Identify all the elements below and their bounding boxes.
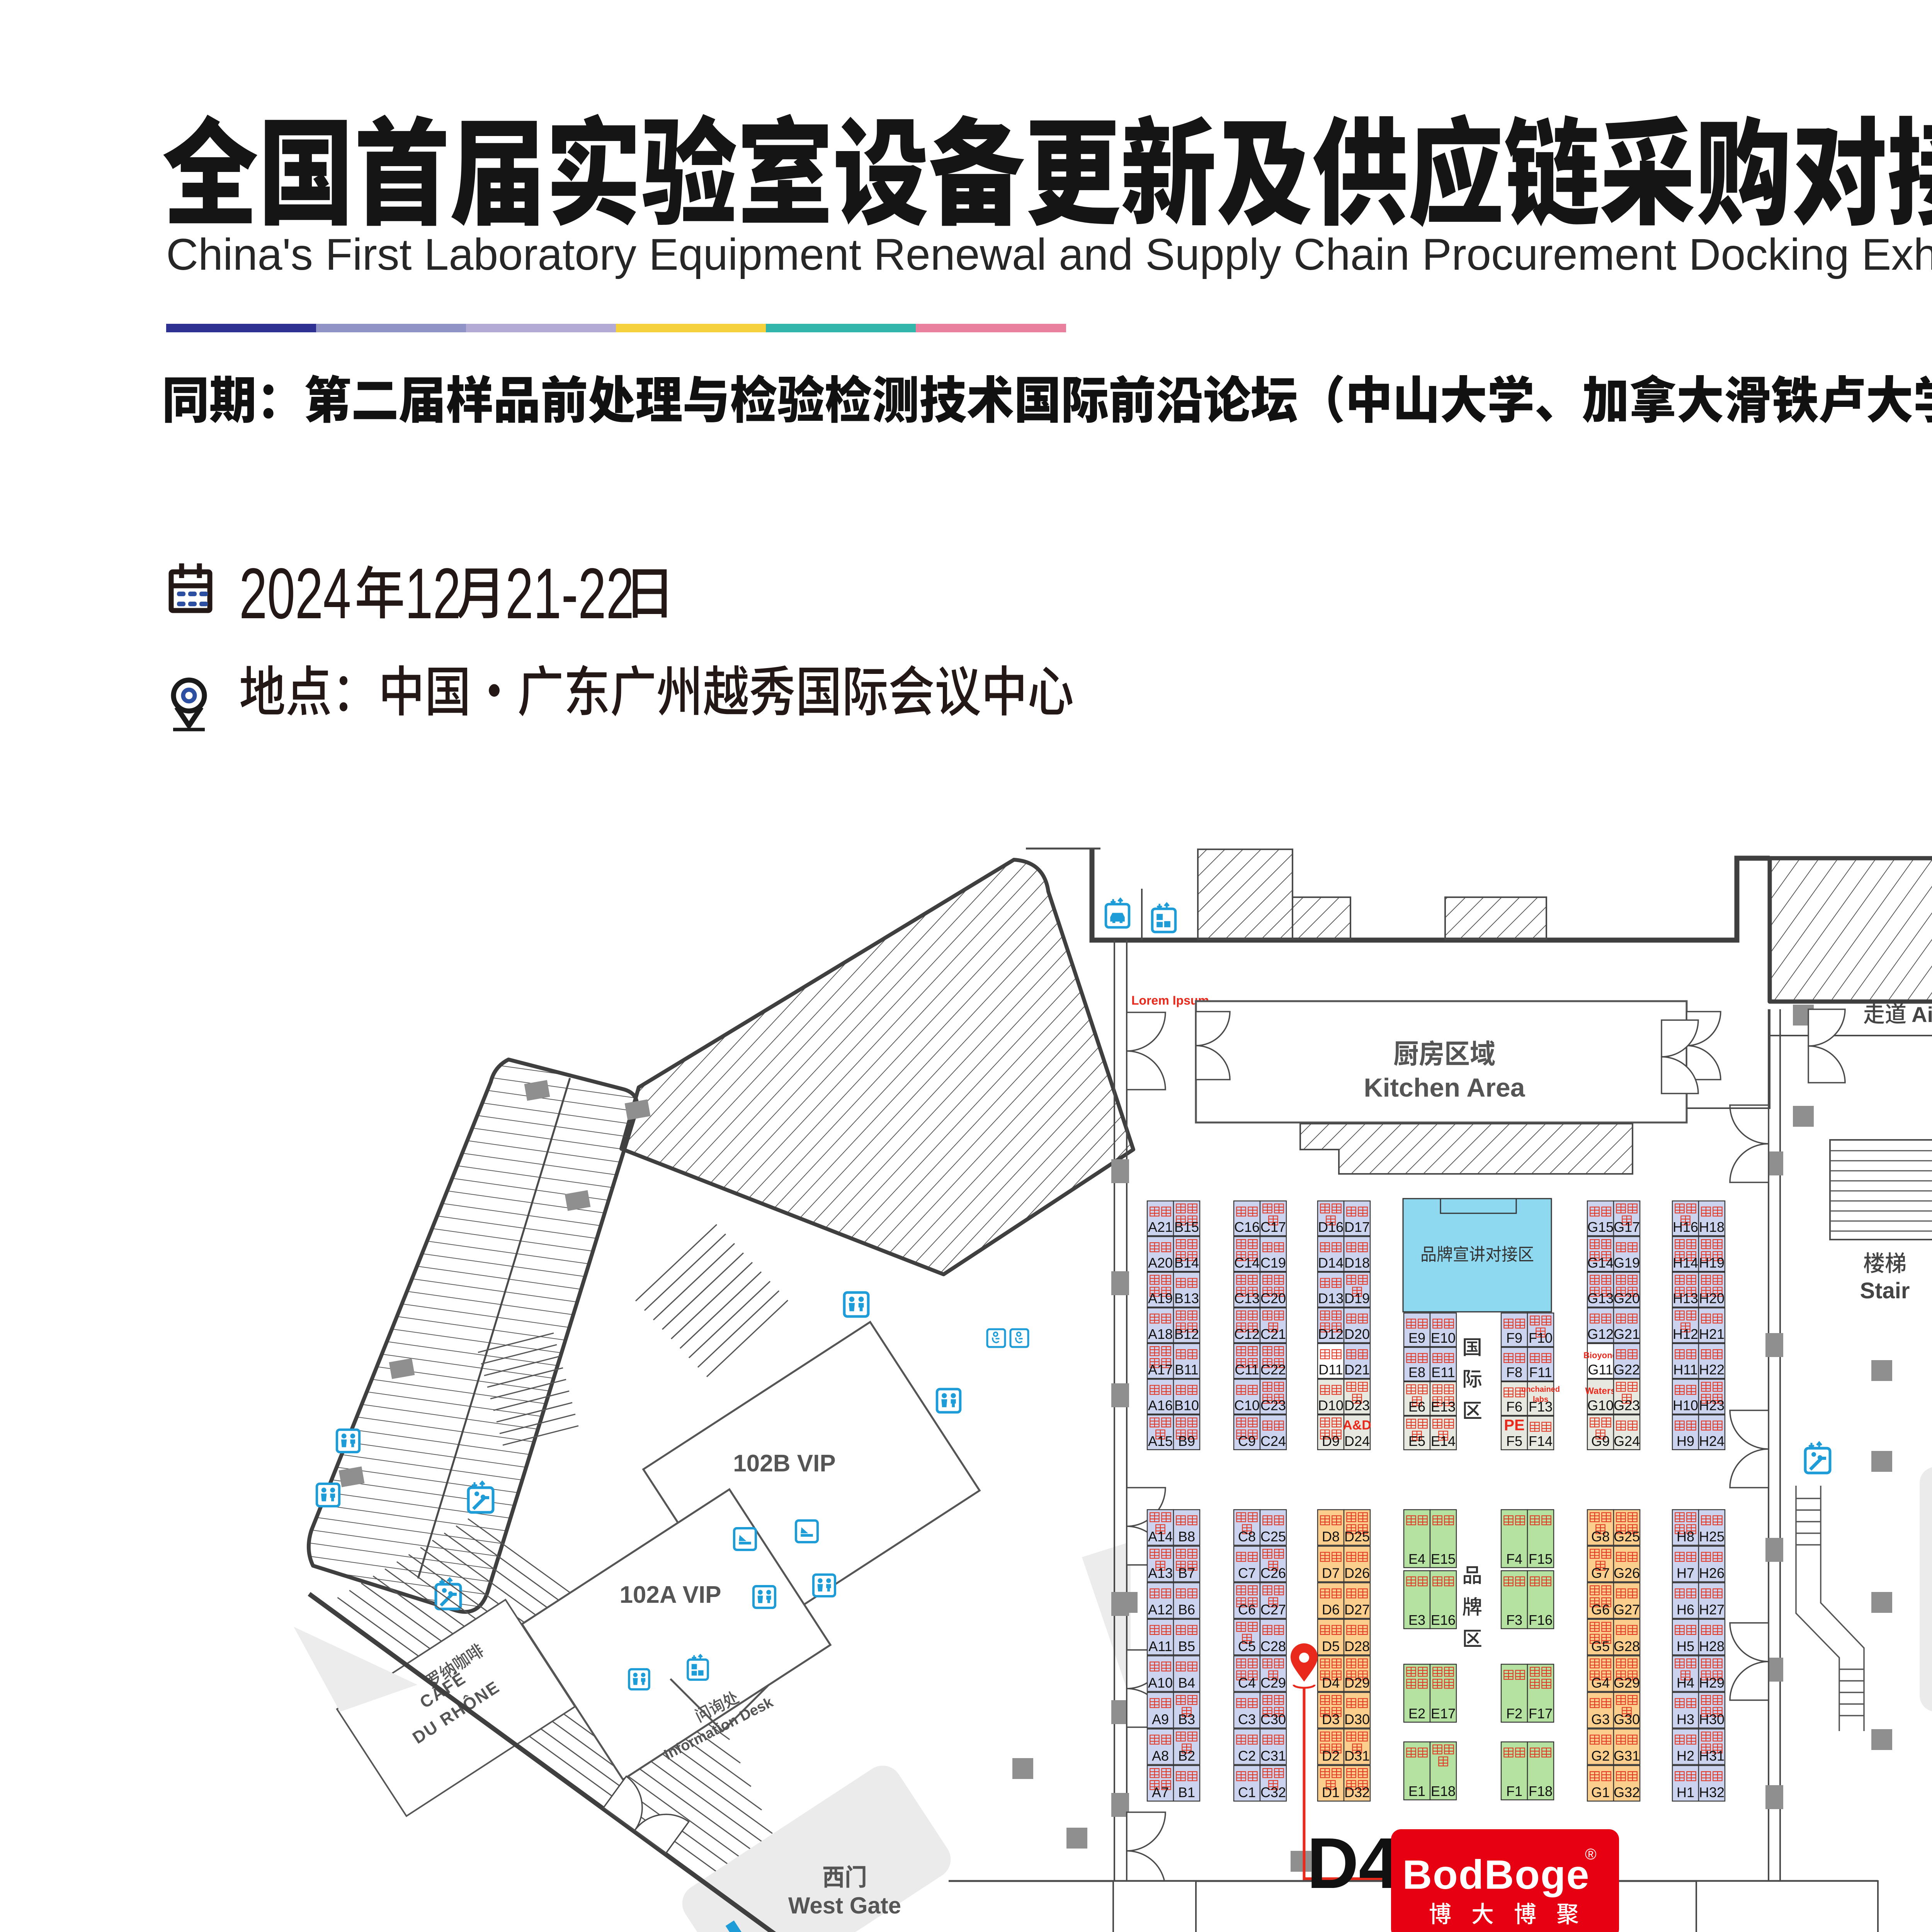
svg-text:F6: F6 (1506, 1399, 1522, 1415)
svg-text:C6: C6 (1238, 1602, 1256, 1617)
svg-text:D2: D2 (1322, 1748, 1340, 1764)
svg-text:21-22: 21-22 (505, 554, 634, 634)
svg-text:H23: H23 (1699, 1398, 1725, 1413)
svg-text:B14: B14 (1174, 1255, 1199, 1270)
svg-text:C32: C32 (1260, 1784, 1286, 1800)
svg-text:H13: H13 (1673, 1291, 1698, 1306)
svg-text:C30: C30 (1260, 1711, 1286, 1727)
svg-text:D19: D19 (1344, 1291, 1370, 1306)
svg-text:102B VIP: 102B VIP (733, 1450, 835, 1477)
svg-text:H20: H20 (1699, 1291, 1725, 1306)
svg-text:H6: H6 (1677, 1602, 1694, 1617)
svg-text:D4: D4 (1322, 1675, 1340, 1690)
svg-text:A17: A17 (1148, 1362, 1173, 1378)
svg-text:F3: F3 (1506, 1612, 1522, 1628)
svg-text:E2: E2 (1408, 1706, 1425, 1721)
svg-text:A11: A11 (1148, 1638, 1172, 1654)
svg-text:D11: D11 (1318, 1362, 1343, 1378)
svg-text:H9: H9 (1677, 1433, 1694, 1449)
svg-text:A12: A12 (1148, 1602, 1173, 1617)
svg-text:D32: D32 (1344, 1784, 1370, 1800)
svg-text:B1: B1 (1178, 1784, 1195, 1800)
svg-text:H5: H5 (1677, 1638, 1694, 1654)
svg-text:E11: E11 (1431, 1364, 1455, 1380)
svg-text:G13: G13 (1587, 1291, 1614, 1306)
svg-text:A13: A13 (1148, 1565, 1173, 1581)
svg-text:G24: G24 (1614, 1433, 1640, 1449)
svg-text:F1: F1 (1506, 1783, 1522, 1799)
svg-text:D9: D9 (1322, 1433, 1340, 1449)
svg-text:H26: H26 (1699, 1565, 1725, 1581)
svg-text:G29: G29 (1614, 1675, 1640, 1690)
svg-text:B2: B2 (1178, 1748, 1195, 1764)
svg-text:A15: A15 (1148, 1433, 1173, 1449)
svg-text:B5: B5 (1178, 1638, 1195, 1654)
svg-text:D27: D27 (1344, 1602, 1370, 1617)
svg-text:China's First Laboratory Equip: China's First Laboratory Equipment Renew… (166, 230, 1932, 279)
svg-text:BodBoge: BodBoge (1402, 1852, 1590, 1898)
svg-text:PE: PE (1504, 1417, 1524, 1434)
svg-text:G4: G4 (1591, 1675, 1610, 1690)
svg-text:H1: H1 (1677, 1784, 1694, 1800)
svg-text:H32: H32 (1699, 1784, 1725, 1800)
svg-text:G25: G25 (1614, 1529, 1640, 1544)
svg-text:G31: G31 (1614, 1748, 1640, 1764)
svg-text:C12: C12 (1234, 1326, 1260, 1342)
svg-text:Stair: Stair (1860, 1278, 1910, 1303)
svg-text:Aisle: Aisle (1912, 1002, 1932, 1027)
svg-text:C7: C7 (1238, 1565, 1256, 1581)
svg-text:D12: D12 (1318, 1326, 1344, 1342)
svg-text:B13: B13 (1174, 1291, 1199, 1306)
svg-text:H21: H21 (1699, 1326, 1725, 1342)
svg-text:D29: D29 (1344, 1675, 1370, 1690)
svg-text:G10: G10 (1587, 1398, 1614, 1413)
svg-text:G28: G28 (1614, 1638, 1640, 1654)
svg-text:E16: E16 (1431, 1612, 1456, 1628)
svg-text:G30: G30 (1614, 1711, 1640, 1727)
svg-text:E15: E15 (1431, 1551, 1456, 1567)
svg-text:D17: D17 (1344, 1219, 1370, 1235)
svg-text:C20: C20 (1260, 1291, 1286, 1306)
svg-text:F4: F4 (1506, 1551, 1522, 1567)
svg-text:G6: G6 (1591, 1602, 1610, 1617)
svg-text:A8: A8 (1152, 1748, 1169, 1764)
svg-text:G12: G12 (1587, 1326, 1614, 1342)
svg-text:C17: C17 (1260, 1219, 1286, 1235)
svg-text:D14: D14 (1318, 1255, 1344, 1270)
svg-text:G17: G17 (1614, 1219, 1640, 1235)
svg-text:B3: B3 (1178, 1711, 1195, 1727)
svg-text:D3: D3 (1322, 1711, 1340, 1727)
svg-text:A20: A20 (1148, 1255, 1173, 1270)
svg-text:H14: H14 (1673, 1255, 1698, 1270)
svg-text:G5: G5 (1591, 1638, 1610, 1654)
svg-text:C25: C25 (1260, 1529, 1286, 1544)
svg-text:G23: G23 (1614, 1398, 1640, 1413)
svg-text:H10: H10 (1673, 1398, 1698, 1413)
svg-text:D7: D7 (1322, 1565, 1340, 1581)
svg-text:C8: C8 (1238, 1529, 1256, 1544)
svg-text:F13: F13 (1529, 1399, 1553, 1415)
svg-text:G2: G2 (1591, 1748, 1610, 1764)
svg-text:C10: C10 (1234, 1398, 1260, 1413)
svg-text:F16: F16 (1529, 1612, 1553, 1628)
svg-text:F2: F2 (1506, 1706, 1522, 1721)
svg-text:H16: H16 (1673, 1219, 1698, 1235)
svg-text:B7: B7 (1178, 1565, 1195, 1581)
svg-text:H8: H8 (1677, 1529, 1694, 1544)
svg-text:F10: F10 (1529, 1330, 1553, 1346)
svg-text:D28: D28 (1344, 1638, 1370, 1654)
svg-text:G15: G15 (1587, 1219, 1614, 1235)
svg-text:H22: H22 (1699, 1362, 1725, 1378)
svg-text:H4: H4 (1677, 1675, 1694, 1690)
svg-text:G22: G22 (1614, 1362, 1640, 1378)
svg-text:G8: G8 (1591, 1529, 1610, 1544)
svg-text:G27: G27 (1614, 1602, 1640, 1617)
svg-text:C2: C2 (1238, 1748, 1256, 1764)
svg-text:E13: E13 (1431, 1399, 1456, 1415)
svg-text:G32: G32 (1614, 1784, 1640, 1800)
svg-text:F18: F18 (1529, 1783, 1553, 1799)
svg-text:C11: C11 (1235, 1362, 1259, 1378)
svg-text:B4: B4 (1178, 1675, 1195, 1690)
svg-text:12: 12 (405, 554, 461, 634)
svg-text:E18: E18 (1431, 1783, 1456, 1799)
svg-text:C22: C22 (1260, 1362, 1286, 1378)
svg-text:E4: E4 (1408, 1551, 1425, 1567)
svg-text:F5: F5 (1506, 1433, 1522, 1449)
svg-text:H11: H11 (1673, 1362, 1697, 1378)
svg-text:B6: B6 (1178, 1602, 1195, 1617)
svg-text:G11: G11 (1588, 1362, 1613, 1378)
svg-text:West Gate: West Gate (788, 1893, 901, 1918)
svg-text:E3: E3 (1408, 1612, 1425, 1628)
svg-text:C9: C9 (1238, 1433, 1256, 1449)
svg-text:D26: D26 (1344, 1565, 1370, 1581)
svg-text:F9: F9 (1506, 1330, 1522, 1346)
svg-text:D30: D30 (1344, 1711, 1370, 1727)
svg-text:Kitchen Area: Kitchen Area (1364, 1073, 1526, 1102)
svg-text:C23: C23 (1260, 1398, 1286, 1413)
svg-text:C14: C14 (1234, 1255, 1260, 1270)
svg-text:E5: E5 (1408, 1433, 1425, 1449)
svg-text:H19: H19 (1699, 1255, 1725, 1270)
svg-text:C27: C27 (1260, 1602, 1286, 1617)
svg-text:G19: G19 (1614, 1255, 1640, 1270)
svg-text:C5: C5 (1238, 1638, 1256, 1654)
svg-text:D31: D31 (1344, 1748, 1370, 1764)
svg-text:H28: H28 (1699, 1638, 1725, 1654)
svg-text:E14: E14 (1431, 1433, 1456, 1449)
svg-text:G7: G7 (1591, 1565, 1610, 1581)
svg-text:E1: E1 (1408, 1783, 1425, 1799)
svg-text:B15: B15 (1174, 1219, 1199, 1235)
svg-text:B9: B9 (1178, 1433, 1195, 1449)
svg-text:H7: H7 (1677, 1565, 1694, 1581)
svg-text:B8: B8 (1178, 1529, 1195, 1544)
svg-text:D6: D6 (1322, 1602, 1340, 1617)
svg-text:D18: D18 (1344, 1255, 1370, 1270)
svg-text:A9: A9 (1152, 1711, 1169, 1727)
svg-text:C13: C13 (1234, 1291, 1260, 1306)
svg-text:102A VIP: 102A VIP (619, 1582, 721, 1608)
svg-text:D16: D16 (1318, 1219, 1344, 1235)
svg-text:H27: H27 (1699, 1602, 1725, 1617)
svg-text:D10: D10 (1318, 1398, 1344, 1413)
svg-text:unchained: unchained (1521, 1385, 1560, 1394)
svg-text:®: ® (1585, 1846, 1596, 1863)
svg-text:C3: C3 (1238, 1711, 1256, 1727)
svg-text:Waters: Waters (1585, 1386, 1616, 1396)
svg-text:E9: E9 (1408, 1330, 1425, 1346)
svg-text:C31: C31 (1260, 1748, 1286, 1764)
svg-text:G26: G26 (1614, 1565, 1640, 1581)
svg-text:C4: C4 (1238, 1675, 1256, 1690)
svg-text:A&D: A&D (1343, 1418, 1371, 1433)
svg-text:E10: E10 (1431, 1330, 1456, 1346)
svg-text:F14: F14 (1529, 1433, 1553, 1449)
svg-text:D20: D20 (1344, 1326, 1370, 1342)
svg-text:C1: C1 (1238, 1784, 1256, 1800)
svg-text:E8: E8 (1408, 1364, 1425, 1380)
svg-text:A10: A10 (1148, 1675, 1173, 1690)
svg-text:E17: E17 (1431, 1706, 1456, 1721)
svg-text:G20: G20 (1614, 1291, 1640, 1306)
svg-text:H25: H25 (1699, 1529, 1725, 1544)
svg-text:D4: D4 (1307, 1823, 1399, 1903)
svg-text:D1: D1 (1322, 1784, 1340, 1800)
svg-text:A16: A16 (1148, 1398, 1173, 1413)
svg-text:D25: D25 (1344, 1529, 1370, 1544)
svg-text:B12: B12 (1174, 1326, 1199, 1342)
svg-text:C26: C26 (1260, 1565, 1286, 1581)
svg-text:C19: C19 (1260, 1255, 1286, 1270)
svg-text:H24: H24 (1699, 1433, 1725, 1449)
svg-text:B11: B11 (1175, 1362, 1198, 1378)
svg-text:H30: H30 (1699, 1711, 1725, 1727)
svg-text:H18: H18 (1699, 1219, 1725, 1235)
svg-text:A14: A14 (1148, 1529, 1173, 1544)
svg-text:F11: F11 (1529, 1364, 1552, 1380)
svg-text:C24: C24 (1260, 1433, 1286, 1449)
svg-text:H12: H12 (1673, 1326, 1698, 1342)
svg-text:G14: G14 (1587, 1255, 1614, 1270)
svg-text:D21: D21 (1344, 1362, 1370, 1378)
svg-text:A21: A21 (1148, 1219, 1173, 1235)
svg-text:D5: D5 (1322, 1638, 1340, 1654)
svg-text:D23: D23 (1344, 1398, 1370, 1413)
svg-text:C16: C16 (1234, 1219, 1260, 1235)
svg-text:A18: A18 (1148, 1326, 1173, 1342)
svg-text:C29: C29 (1260, 1675, 1286, 1690)
svg-text:G1: G1 (1591, 1784, 1610, 1800)
svg-text:E6: E6 (1408, 1399, 1425, 1415)
svg-text:D13: D13 (1318, 1291, 1344, 1306)
svg-text:A7: A7 (1152, 1784, 1169, 1800)
svg-text:F17: F17 (1529, 1706, 1553, 1721)
svg-text:H31: H31 (1699, 1748, 1725, 1764)
svg-text:G3: G3 (1591, 1711, 1610, 1727)
svg-text:C21: C21 (1260, 1326, 1286, 1342)
svg-text:Bioyond: Bioyond (1583, 1350, 1617, 1360)
svg-text:D8: D8 (1322, 1529, 1340, 1544)
svg-text:F15: F15 (1529, 1551, 1553, 1567)
svg-text:C28: C28 (1260, 1638, 1286, 1654)
svg-text:H3: H3 (1677, 1711, 1694, 1727)
svg-text:G21: G21 (1614, 1326, 1640, 1342)
svg-text:B10: B10 (1174, 1398, 1199, 1413)
svg-text:2024: 2024 (239, 554, 351, 634)
svg-text:D24: D24 (1344, 1433, 1370, 1449)
svg-text:F8: F8 (1506, 1364, 1522, 1380)
svg-text:G9: G9 (1591, 1433, 1610, 1449)
svg-text:A19: A19 (1148, 1291, 1173, 1306)
svg-text:H29: H29 (1699, 1675, 1725, 1690)
svg-text:H2: H2 (1677, 1748, 1694, 1764)
